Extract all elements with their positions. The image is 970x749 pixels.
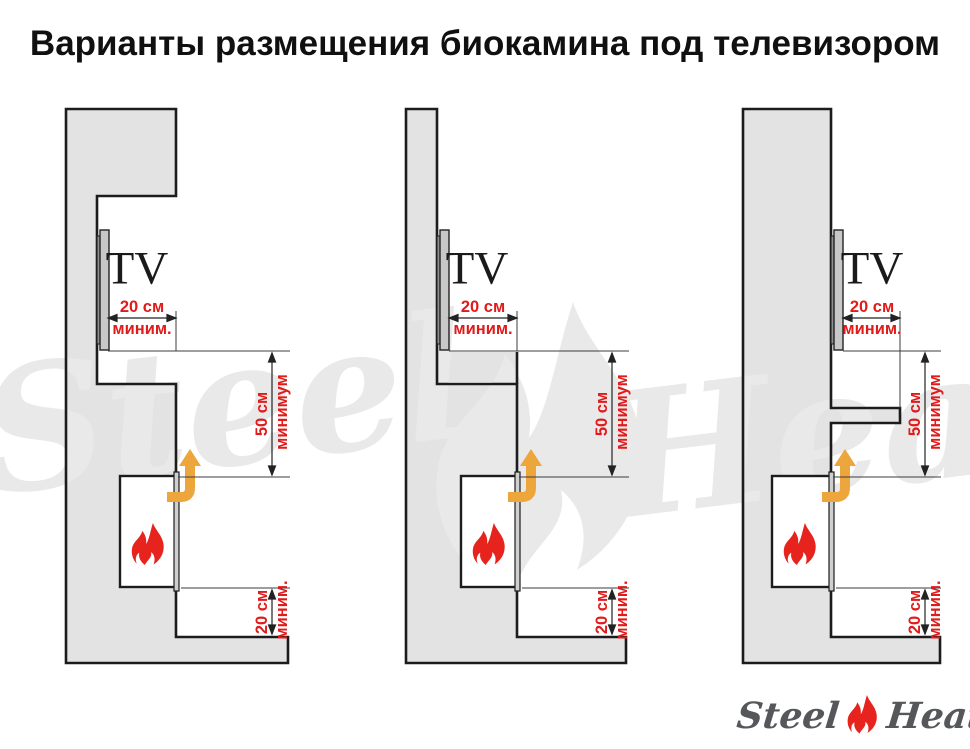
dim-floor-value: 20 см	[254, 590, 271, 634]
dim-recess-qualifier: миним.	[112, 321, 171, 338]
tv-label: TV	[106, 246, 169, 293]
logo-steel-text: Steel	[735, 695, 842, 737]
dim-recess-qualifier: миним.	[453, 321, 512, 338]
logo-flame-icon	[846, 692, 880, 740]
infographic-canvas: Варианты размещения биокамина под телеви…	[0, 0, 970, 749]
dim-recess-value: 20 см	[850, 299, 894, 316]
dim-recess-value: 20 см	[461, 299, 505, 316]
dim-clearance-qualifier: минимум	[614, 374, 631, 450]
dim-floor-value: 20 см	[594, 590, 611, 634]
dim-clearance-value: 50 см	[254, 392, 271, 436]
dim-clearance-qualifier: минимум	[274, 374, 291, 450]
dim-floor-qualifier: миним.	[274, 580, 291, 639]
dim-floor-value: 20 см	[907, 590, 924, 634]
fireplace-glass	[515, 472, 520, 591]
fireplace-glass	[174, 472, 179, 591]
diagram-svg: Steel Heat	[0, 0, 970, 749]
dim-floor-qualifier: миним.	[614, 580, 631, 639]
dim-recess-value: 20 см	[120, 299, 164, 316]
tv-label: TV	[446, 246, 509, 293]
logo-heat-text: Heat	[885, 695, 970, 737]
dim-clearance-value: 50 см	[907, 392, 924, 436]
dim-clearance-qualifier: минимум	[927, 374, 944, 450]
brand-logo: Steel Heat	[737, 688, 970, 744]
tv-label: TV	[841, 246, 904, 293]
dim-recess-qualifier: миним.	[842, 321, 901, 338]
dim-floor-qualifier: миним.	[927, 580, 944, 639]
fireplace-niche	[772, 476, 830, 587]
fireplace-glass	[829, 472, 834, 591]
dim-clearance-value: 50 см	[594, 392, 611, 436]
